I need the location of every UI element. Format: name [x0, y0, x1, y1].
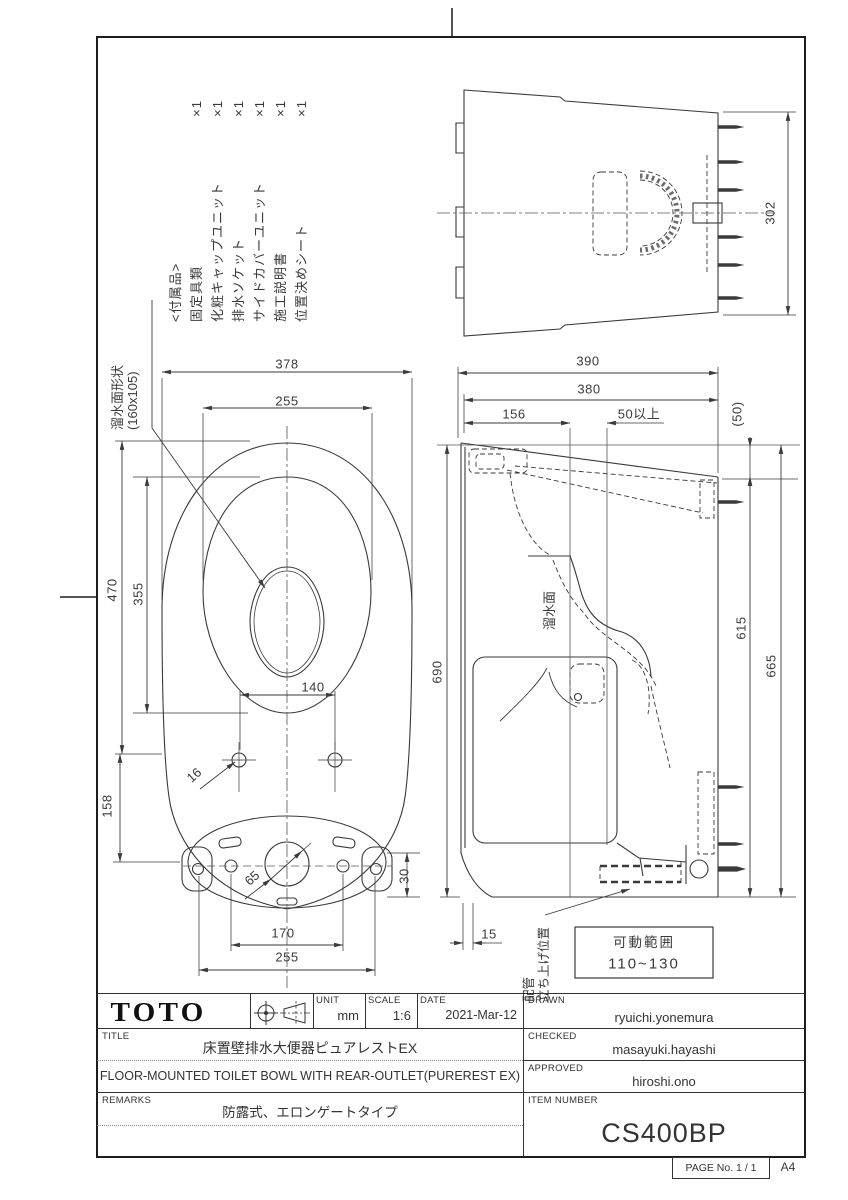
side-bolts	[718, 500, 746, 871]
dim-380: 380	[577, 382, 600, 397]
remarks-value: 防露式、エロンゲートタイプ	[97, 1101, 523, 1121]
accessory-item: 施工説明書 ×1	[270, 100, 291, 322]
accessory-item: 化粧キャップユニット ×1	[207, 100, 228, 322]
paper-size: A4	[770, 1157, 806, 1177]
side-water-surface-label: 溜水面	[542, 584, 558, 630]
toto-logo: TOTO	[110, 997, 206, 1028]
unit-label: UNIT	[316, 995, 339, 1006]
dim-470: 470	[105, 578, 120, 601]
accessories-list: <付属品> 固定具類 ×1 化粧キャップユニット ×1 排水ソケット ×1 サイ…	[165, 100, 312, 322]
dim-255-top: 255	[275, 394, 298, 409]
checked-label: CHECKED	[528, 1031, 577, 1042]
side-view-linework	[437, 428, 800, 978]
accessory-item: 位置決めシート ×1	[291, 100, 312, 322]
page-number: PAGE No. 1 / 1	[685, 1162, 756, 1174]
scale-label: SCALE	[368, 995, 401, 1006]
movable-range-title: 可動範囲	[613, 931, 675, 951]
water-surface-shape-label: 溜水面形状 (160x105)	[110, 298, 140, 430]
unit-value: mm	[313, 1008, 359, 1023]
plan-view-linework	[162, 426, 412, 988]
dim-665: 665	[764, 654, 779, 677]
rear-view-linework	[437, 90, 775, 336]
item-number-value: CS400BP	[523, 1118, 805, 1149]
dim-302: 302	[763, 201, 778, 224]
scale-value: 1:6	[365, 1008, 411, 1023]
accessories-heading: <付属品>	[165, 100, 186, 322]
date-value: 2021-Mar-12	[417, 1008, 517, 1022]
projection-symbol-icon	[254, 1001, 312, 1025]
title-jp: 床置壁排水大便器ピュアレストEX	[97, 1038, 523, 1058]
accessory-item: 固定具類 ×1	[186, 100, 207, 322]
dim-390: 390	[576, 354, 599, 369]
dim-50paren: (50)	[730, 401, 745, 426]
dim-255-bottom: 255	[275, 950, 298, 965]
checked-value: masayuki.hayashi	[523, 1042, 805, 1057]
dim-15: 15	[481, 927, 496, 942]
dim-158: 158	[100, 794, 115, 817]
dim-378: 378	[275, 357, 298, 372]
item-number-label: ITEM NUMBER	[528, 1095, 598, 1106]
dim-615: 615	[734, 616, 749, 639]
movable-range-value: 110~130	[608, 956, 680, 973]
dim-30: 30	[397, 868, 412, 883]
drawing-sheet: <付属品> 固定具類 ×1 化粧キャップユニット ×1 排水ソケット ×1 サイ…	[0, 0, 848, 1200]
approved-value: hiroshi.ono	[523, 1074, 805, 1089]
date-label: DATE	[420, 995, 446, 1006]
title-en: FLOOR-MOUNTED TOILET BOWL WITH REAR-OUTL…	[97, 1069, 523, 1083]
accessory-item: 排水ソケット ×1	[228, 100, 249, 322]
dim-156: 156	[502, 407, 525, 422]
dim-355: 355	[131, 582, 146, 605]
leader-lines	[152, 300, 750, 943]
accessory-item: サイドカバーユニット ×1	[249, 100, 270, 322]
pipe-riser-label: 配管 立ち上げ位置	[522, 910, 550, 1002]
drawn-label: DRAWN	[528, 995, 565, 1006]
page-number-box: PAGE No. 1 / 1	[672, 1157, 770, 1179]
approved-label: APPROVED	[528, 1063, 583, 1074]
dim-170: 170	[271, 926, 294, 941]
dim-140: 140	[301, 680, 324, 695]
drawn-value: ryuichi.yonemura	[523, 1010, 805, 1025]
dim-690: 690	[430, 660, 445, 683]
dim-50min: 50以上	[618, 404, 660, 423]
